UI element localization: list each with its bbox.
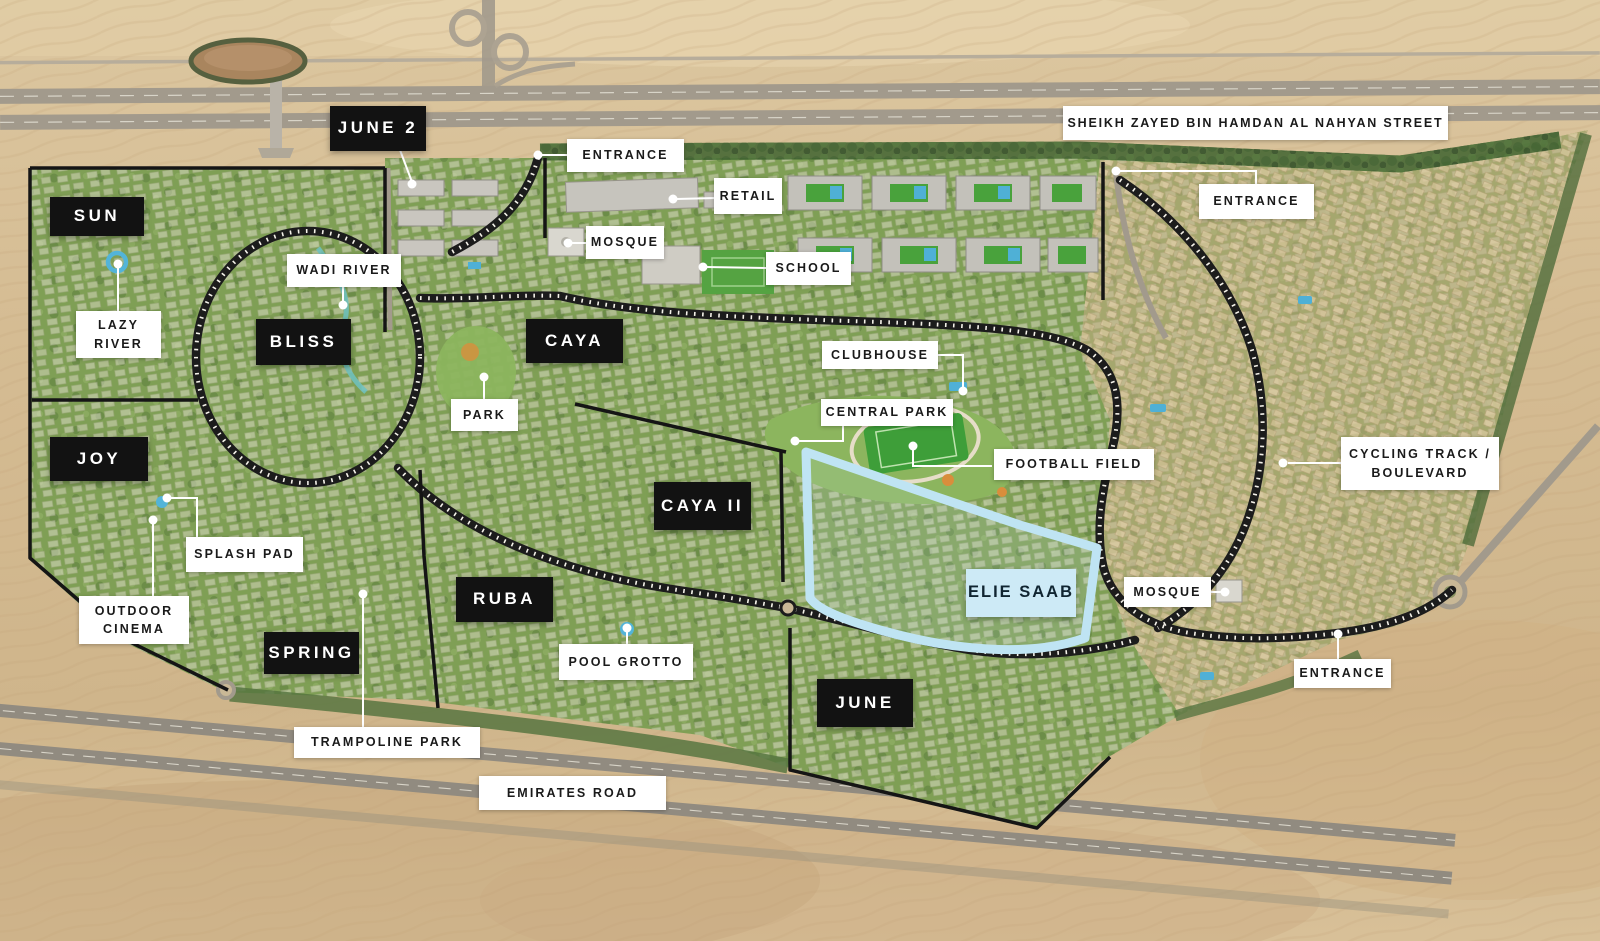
amenity-label-mosque-right: MOSQUE	[1124, 577, 1211, 607]
amenity-label-wadi-river: WADI RIVER	[287, 254, 401, 287]
road-label-text: EMIRATES ROAD	[507, 784, 638, 802]
amenity-label-text: PARK	[463, 406, 506, 424]
district-label-june: JUNE	[817, 679, 913, 727]
amenity-label-school: SCHOOL	[766, 252, 851, 285]
amenity-label-trampoline-park: TRAMPOLINE PARK	[294, 727, 480, 758]
road-label-emirates-road: EMIRATES ROAD	[479, 776, 666, 810]
amenity-label-text: CINEMA	[103, 620, 165, 638]
amenity-label-entrance-top: ENTRANCE	[567, 139, 684, 172]
amenity-label-text: MOSQUE	[591, 233, 659, 251]
district-label-text: CAYA	[545, 329, 604, 354]
district-label-june2: JUNE 2	[330, 106, 426, 151]
amenity-label-retail: RETAIL	[714, 178, 782, 214]
master-plan-map: SHEIKH ZAYED BIN HAMDAN AL NAHYAN STREET…	[0, 0, 1600, 941]
district-label-caya: CAYA	[526, 319, 623, 363]
amenity-label-text: BOULEVARD	[1371, 464, 1468, 482]
district-label-ruba: RUBA	[456, 577, 553, 622]
district-label-text: CAYA II	[661, 494, 744, 519]
amenity-label-clubhouse: CLUBHOUSE	[822, 341, 938, 369]
amenity-label-text: CYCLING TRACK /	[1349, 445, 1491, 463]
amenity-label-text: POOL GROTTO	[568, 653, 683, 671]
amenity-label-text: MOSQUE	[1133, 583, 1201, 601]
road-label-text: SHEIKH ZAYED BIN HAMDAN AL NAHYAN STREET	[1068, 114, 1444, 132]
district-label-spring: SPRING	[264, 632, 359, 674]
amenity-label-splash-pad: SPLASH PAD	[186, 537, 303, 572]
amenity-label-text: SPLASH PAD	[194, 545, 295, 563]
amenity-label-text: ENTRANCE	[1299, 664, 1385, 682]
district-label-text: RUBA	[473, 587, 536, 612]
amenity-label-text: CLUBHOUSE	[831, 346, 929, 364]
district-label-text: SUN	[74, 204, 120, 229]
amenity-label-text: SCHOOL	[775, 259, 841, 277]
district-label-text: JUNE 2	[338, 116, 419, 141]
district-label-elie-saab: ELIE SAAB	[966, 569, 1076, 617]
amenity-label-text: FOOTBALL FIELD	[1006, 455, 1143, 473]
amenity-label-text: WADI RIVER	[296, 261, 391, 279]
district-label-joy: JOY	[50, 437, 148, 481]
amenity-label-entrance-top-right: ENTRANCE	[1199, 184, 1314, 219]
amenity-label-text: RIVER	[94, 335, 143, 353]
amenity-label-mosque-top: MOSQUE	[586, 226, 664, 259]
amenity-label-text: CENTRAL PARK	[826, 403, 949, 421]
amenity-label-text: OUTDOOR	[95, 602, 174, 620]
amenity-label-football-field: FOOTBALL FIELD	[994, 449, 1154, 480]
district-label-sun: SUN	[50, 197, 144, 236]
district-label-text: BLISS	[270, 330, 338, 355]
amenity-label-outdoor-cinema: OUTDOORCINEMA	[79, 596, 189, 644]
amenity-label-park: PARK	[451, 399, 518, 431]
amenity-label-central-park: CENTRAL PARK	[821, 399, 953, 426]
amenity-label-text: LAZY	[98, 316, 139, 334]
road-label-sheikh-zayed: SHEIKH ZAYED BIN HAMDAN AL NAHYAN STREET	[1063, 106, 1448, 140]
district-label-text: SPRING	[268, 641, 354, 666]
district-label-caya-ii: CAYA II	[654, 482, 751, 530]
district-label-text: JUNE	[835, 691, 894, 716]
amenity-label-cycling-track: CYCLING TRACK /BOULEVARD	[1341, 437, 1499, 490]
amenity-label-text: RETAIL	[720, 187, 777, 205]
district-label-bliss: BLISS	[256, 319, 351, 365]
amenity-label-entrance-right: ENTRANCE	[1294, 659, 1391, 688]
amenity-label-text: ENTRANCE	[582, 146, 668, 164]
district-label-text: ELIE SAAB	[968, 581, 1074, 605]
amenity-label-text: TRAMPOLINE PARK	[311, 733, 463, 751]
amenity-label-text: ENTRANCE	[1213, 192, 1299, 210]
district-label-text: JOY	[77, 447, 122, 472]
amenity-label-pool-grotto: POOL GROTTO	[559, 644, 693, 680]
amenity-label-lazy-river: LAZYRIVER	[76, 311, 161, 358]
